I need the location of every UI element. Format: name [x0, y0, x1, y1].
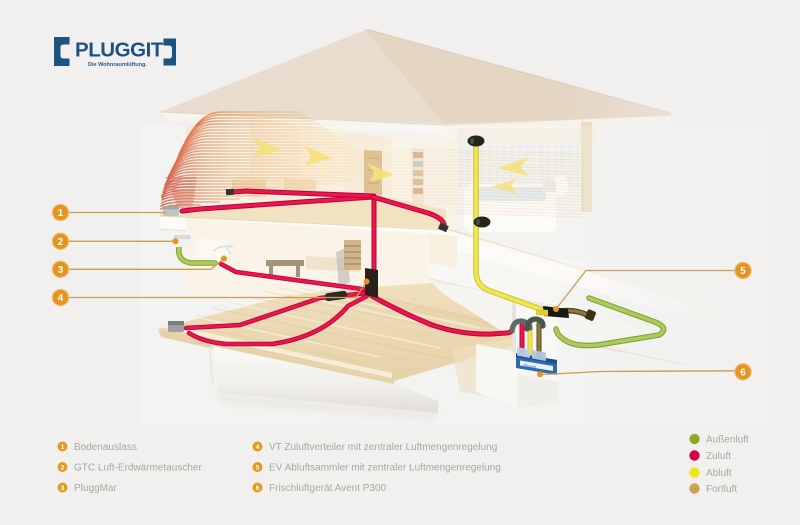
svg-text:3: 3: [61, 485, 65, 492]
svg-text:5: 5: [740, 266, 746, 277]
svg-text:1: 1: [61, 444, 65, 451]
svg-text:EV Abluftsammler mit zentraler: EV Abluftsammler mit zentraler Luftmenge…: [269, 463, 501, 474]
svg-text:6: 6: [256, 485, 260, 492]
svg-text:PLUGGIT: PLUGGIT: [75, 39, 164, 62]
svg-text:4: 4: [256, 444, 260, 451]
svg-text:5: 5: [256, 464, 260, 471]
svg-text:1: 1: [58, 208, 64, 219]
svg-text:Abluft: Abluft: [706, 468, 732, 479]
svg-text:4: 4: [58, 293, 64, 304]
svg-text:Zuluft: Zuluft: [706, 451, 731, 462]
svg-text:6: 6: [740, 367, 746, 378]
svg-text:Außenluft: Außenluft: [706, 435, 749, 446]
svg-text:GTC Luft-Erdwärmetauscher: GTC Luft-Erdwärmetauscher: [74, 463, 202, 474]
svg-text:VT Zuluftverteiler mit zentral: VT Zuluftverteiler mit zentraler Luftmen…: [269, 442, 497, 453]
svg-text:2: 2: [61, 464, 65, 471]
svg-text:Frischluftgerät Avent P300: Frischluftgerät Avent P300: [269, 483, 387, 494]
svg-text:2: 2: [58, 237, 64, 248]
svg-text:PluggMar: PluggMar: [74, 483, 117, 494]
svg-text:Fortluft: Fortluft: [706, 484, 737, 495]
svg-text:Bodenauslass: Bodenauslass: [74, 442, 137, 453]
svg-text:Die Wohnraumlüftung.: Die Wohnraumlüftung.: [88, 62, 147, 68]
svg-text:3: 3: [58, 265, 64, 276]
